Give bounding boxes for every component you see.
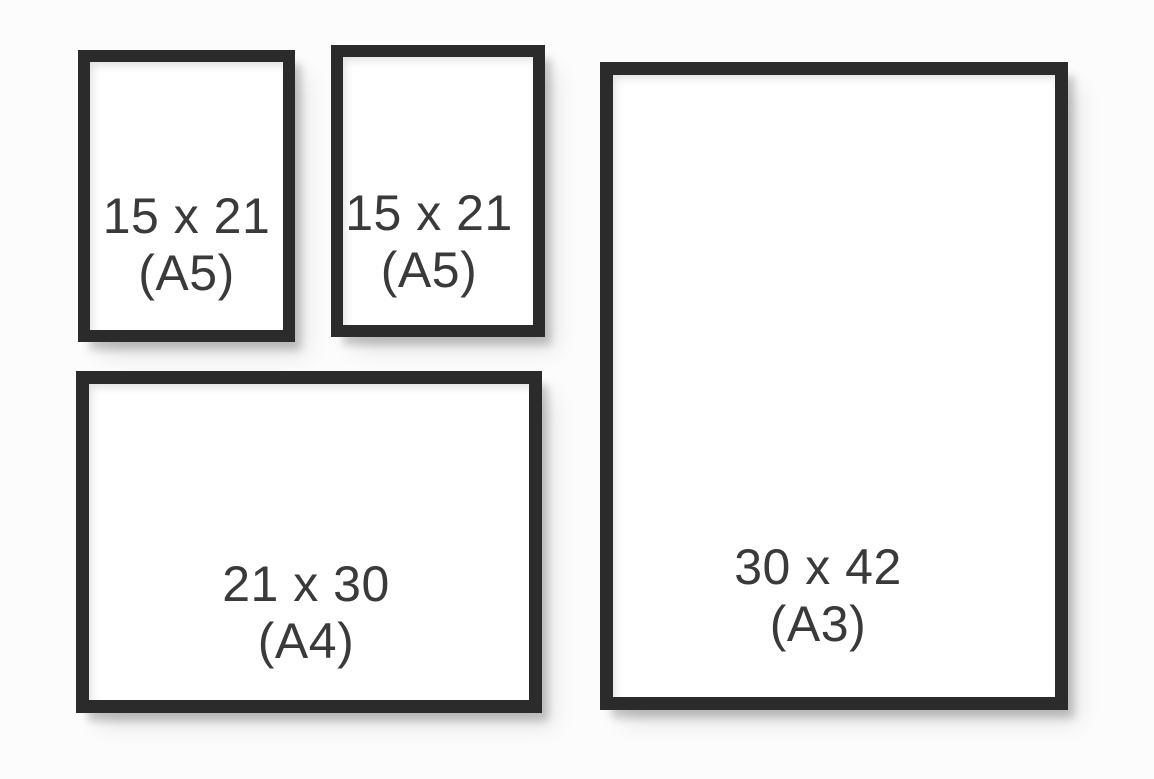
frame-size-label: 15 x 21 (A5) (343, 185, 533, 299)
frame-dimensions-text: 15 x 21 (90, 188, 283, 245)
frame-a5-top-middle: 15 x 21 (A5) (331, 45, 545, 337)
frame-dimensions-text: 30 x 42 (613, 539, 1023, 596)
frame-format-text: (A5) (90, 245, 283, 302)
frame-a5-top-left: 15 x 21 (A5) (78, 50, 295, 342)
frame-a4-bottom-left: 21 x 30 (A4) (76, 371, 542, 713)
frame-dimensions-text: 15 x 21 (343, 185, 515, 242)
frame-size-label: 15 x 21 (A5) (90, 188, 283, 302)
frame-format-text: (A4) (89, 613, 523, 670)
frame-dimensions-text: 21 x 30 (89, 556, 523, 613)
frame-size-label: 30 x 42 (A3) (613, 539, 1055, 653)
frame-format-text: (A5) (343, 242, 515, 299)
frame-size-label: 21 x 30 (A4) (89, 556, 529, 670)
frame-a3-right: 30 x 42 (A3) (600, 62, 1068, 710)
frame-format-text: (A3) (613, 596, 1023, 653)
wall-background: 15 x 21 (A5) 15 x 21 (A5) 30 x 42 (A3) 2… (0, 0, 1154, 779)
